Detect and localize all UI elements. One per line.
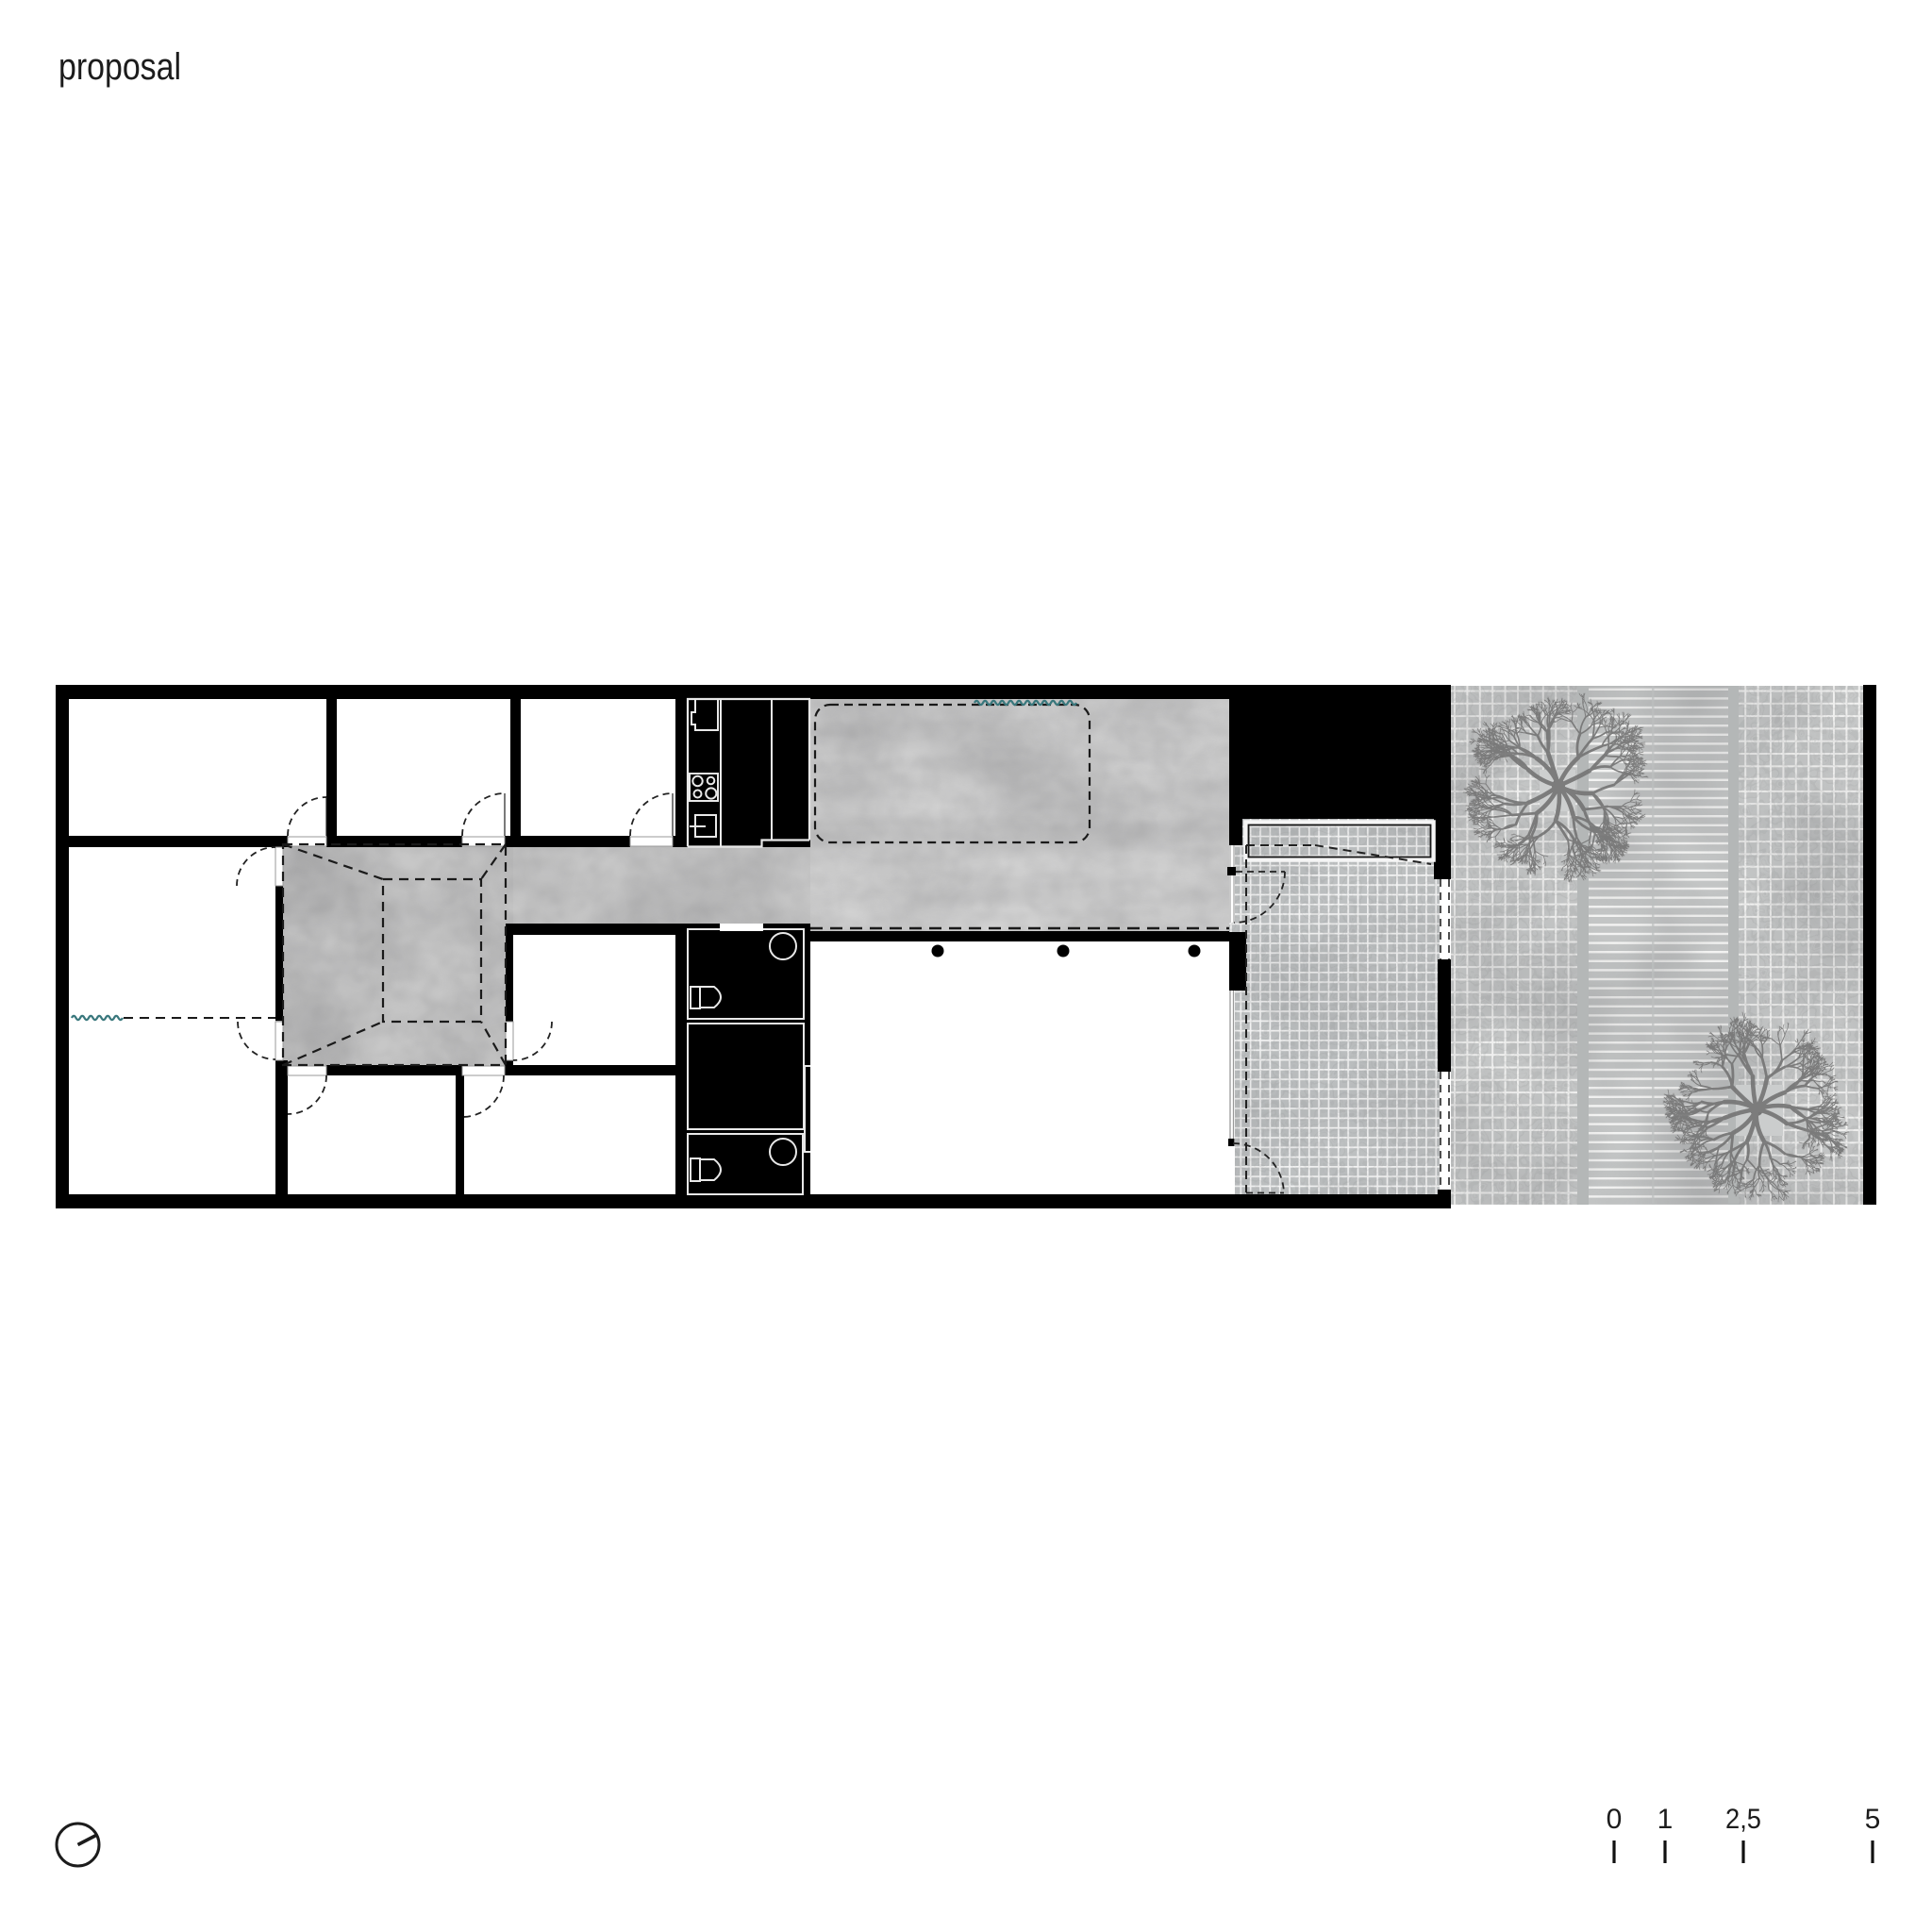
svg-text:proposal: proposal <box>58 46 181 88</box>
svg-text:0: 0 <box>1607 1804 1623 1835</box>
svg-text:2,5: 2,5 <box>1725 1804 1761 1835</box>
svg-text:5: 5 <box>1865 1804 1881 1835</box>
svg-text:1: 1 <box>1657 1804 1674 1835</box>
